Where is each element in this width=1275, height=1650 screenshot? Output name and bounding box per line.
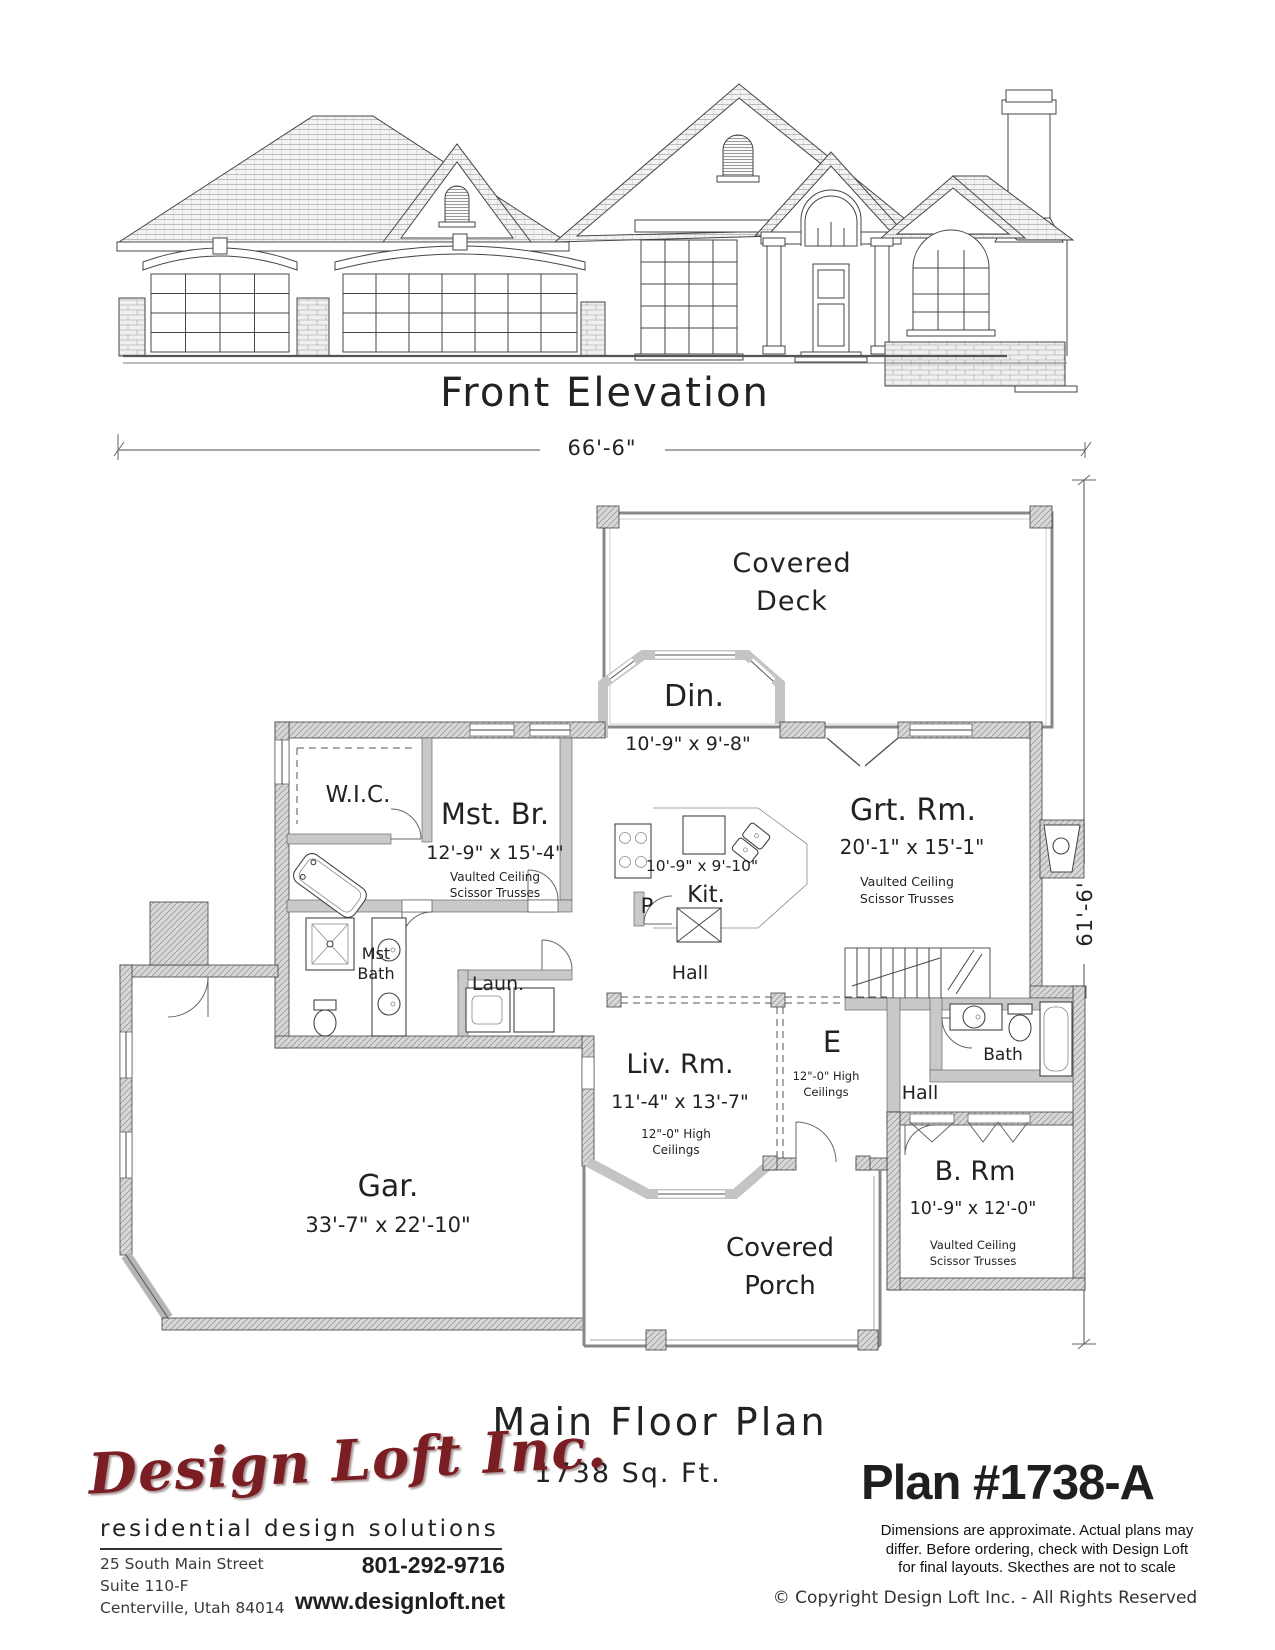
attic-vent-icon	[445, 186, 469, 222]
bathtub-icon	[1040, 1002, 1072, 1076]
master-bath-fixtures	[290, 850, 406, 1036]
room-label-wic: W.I.C.	[326, 782, 391, 808]
room-label-covered-porch: Covered	[726, 1233, 834, 1263]
great-room-windows-icon	[635, 240, 743, 360]
room-label-covered-deck2: Deck	[756, 586, 828, 617]
company-tagline: residential design solutions	[100, 1516, 502, 1550]
copyright-notice: © Copyright Design Loft Inc. - All Right…	[765, 1588, 1205, 1608]
door-arc	[168, 977, 208, 1017]
room-label-pantry: P	[641, 894, 654, 918]
disclaimer-line1: Dimensions are approximate. Actual plans…	[867, 1522, 1207, 1541]
room-note-living-room: 12"-0" High	[641, 1127, 711, 1141]
interior-walls-master	[287, 738, 572, 942]
garage-door-double	[335, 234, 585, 352]
brick-foundation	[885, 342, 1077, 392]
room-note-entry: 12"-0" High	[793, 1069, 860, 1083]
company-logo: Design Loft Inc.	[87, 1414, 610, 1507]
disclaimer-line3: for final layouts. Skecthes are not to s…	[867, 1559, 1207, 1578]
plan-number: Plan #1738-A	[810, 1455, 1205, 1511]
elevation-title: Front Elevation	[440, 370, 770, 416]
room-note-bedroom: Vaulted Ceiling	[930, 1238, 1016, 1252]
door-arc	[542, 940, 572, 970]
toilet-icon	[314, 1000, 336, 1036]
room-note-great-room: Vaulted Ceiling	[860, 874, 954, 889]
room-dims-kitchen: 10'-9" x 9'-10"	[646, 857, 758, 875]
room-dims-great-room: 20'-1" x 15'-1"	[840, 835, 985, 859]
room-label-hall: Hall	[672, 962, 709, 984]
living-room-bay	[588, 1122, 887, 1194]
disclaimer: Dimensions are approximate. Actual plans…	[867, 1522, 1207, 1578]
room-label-bedroom: B. Rm	[935, 1156, 1016, 1187]
stoop	[150, 902, 208, 965]
address-line1: 25 South Main Street	[100, 1553, 285, 1575]
room-label-dining: Din.	[664, 679, 724, 714]
garage-door-single	[143, 238, 297, 352]
room-note-living-room2: Ceilings	[652, 1143, 699, 1157]
room-dims-bedroom: 10'-9" x 12'-0"	[910, 1199, 1037, 1219]
french-door-icon	[827, 738, 898, 766]
room-note-master-bedroom: Vaulted Ceiling	[450, 870, 540, 884]
room-dims-dining: 10'-9" x 9'-8"	[625, 733, 750, 755]
island-icon	[683, 816, 725, 854]
door-arc	[796, 1122, 836, 1162]
room-note-bedroom2: Scissor Trusses	[930, 1254, 1017, 1268]
plan-sheet: Front Elevation 66'-6" 61'-6'	[0, 0, 1275, 1650]
room-note-master-bedroom2: Scissor Trusses	[450, 886, 540, 900]
room-dims-master-bedroom: 12'-9" x 15'-4"	[426, 842, 564, 864]
room-label-master-bath2: Bath	[357, 964, 394, 983]
dimension-width-label: 66'-6"	[567, 436, 636, 460]
sink-icon	[963, 1006, 985, 1028]
fridge-icon	[677, 908, 721, 942]
room-dims-garage: 33'-7" x 22'-10"	[305, 1213, 470, 1237]
room-dims-living-room: 11'-4" x 13'-7"	[611, 1091, 749, 1113]
room-label-laundry: Laun.	[472, 973, 524, 995]
room-label-living-room: Liv. Rm.	[626, 1049, 733, 1080]
room-label-covered-deck: Covered	[732, 548, 851, 579]
toilet-icon	[1008, 1004, 1032, 1041]
room-label-great-room: Grt. Rm.	[850, 793, 976, 828]
fireplace-icon	[1040, 820, 1084, 878]
door-arc	[391, 809, 421, 839]
room-note-great-room2: Scissor Trusses	[860, 891, 954, 906]
stairs	[845, 948, 990, 998]
room-label-hall2: Hall	[902, 1082, 939, 1104]
room-label-entry: E	[823, 1025, 841, 1059]
room-label-bath: Bath	[983, 1045, 1023, 1065]
disclaimer-line2: differ. Before ordering, check with Desi…	[867, 1541, 1207, 1560]
room-label-master-bath: Mst	[362, 944, 390, 963]
room-label-covered-porch2: Porch	[744, 1271, 816, 1301]
attic-vent-icon	[723, 135, 753, 176]
dimension-width: 66'-6"	[110, 432, 1095, 464]
company-phone: 801-292-9716	[290, 1552, 505, 1579]
room-note-entry2: Ceilings	[803, 1085, 848, 1099]
floor-plan-drawing: Covered Deck Din. 10'-9" x 9'-8" Grt. Rm…	[110, 472, 1095, 1362]
room-label-master-bedroom: Mst. Br.	[441, 797, 549, 831]
company-website: www.designloft.net	[250, 1588, 505, 1615]
room-label-kitchen: Kit.	[687, 882, 725, 908]
kitchen-fixtures	[615, 808, 807, 942]
shower-icon	[306, 918, 354, 970]
front-elevation-drawing	[115, 50, 1125, 395]
room-label-garage: Gar.	[358, 1169, 419, 1204]
arched-window-icon	[907, 230, 995, 336]
